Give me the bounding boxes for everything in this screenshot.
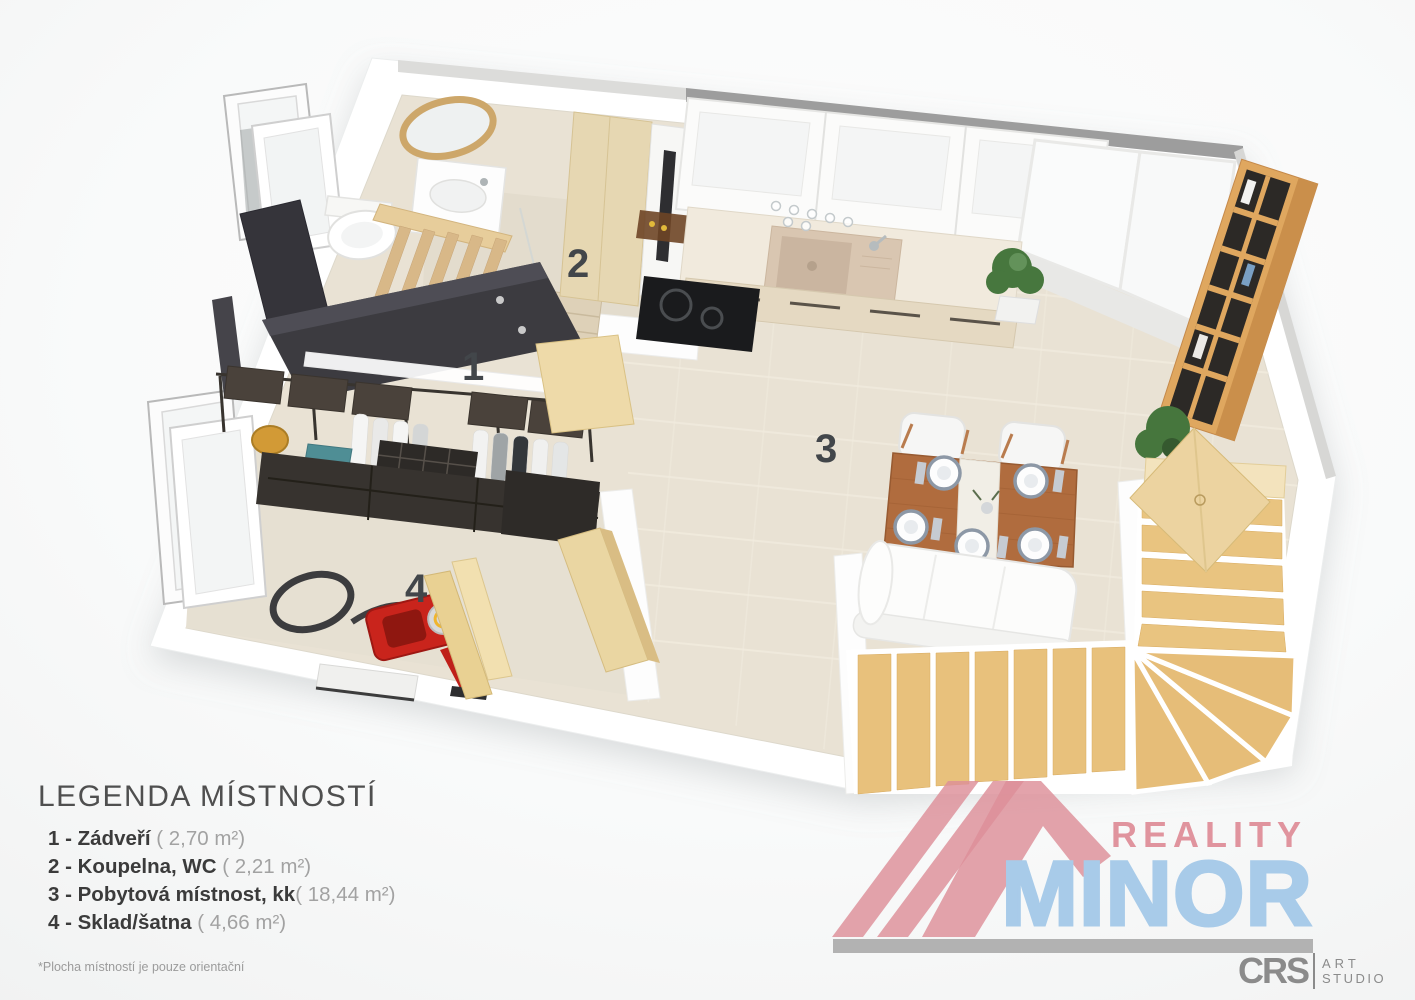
legend-item-2: 2 - Koupelna, WC ( 2,21 m²) xyxy=(48,853,395,881)
room-label-4: 4 xyxy=(405,567,428,611)
legend-item-2-area: ( 2,21 m²) xyxy=(217,855,312,878)
legend-title: LEGENDA MÍSTNOSTÍ xyxy=(38,780,395,814)
open-wood-door-hall xyxy=(536,335,634,433)
room-label-3: 3 xyxy=(815,427,837,471)
studio-credit-line2: STUDIO xyxy=(1322,971,1386,986)
studio-credit-logo: CRS xyxy=(1238,950,1308,992)
real-estate-floorplan-image: 1 2 3 4 LEGENDA MÍSTNOSTÍ 1 - Zádveří ( … xyxy=(0,0,1415,1000)
staircase-winder xyxy=(1132,650,1296,792)
legend: LEGENDA MÍSTNOSTÍ 1 - Zádveří ( 2,70 m²)… xyxy=(38,780,395,937)
studio-credit-text: ART STUDIO xyxy=(1322,956,1386,986)
brand-minor-wordmark: MINOR xyxy=(940,848,1313,940)
studio-credit: CRS ART STUDIO xyxy=(1238,950,1386,992)
legend-item-3: 3 - Pobytová místnost, kk( 18,44 m²) xyxy=(48,881,395,909)
footnote: *Plocha místností je pouze orientační xyxy=(38,960,244,974)
studio-credit-line1: ART xyxy=(1322,956,1386,971)
amber-stool xyxy=(252,426,288,454)
legend-item-1-area: ( 2,70 m²) xyxy=(151,827,246,850)
legend-item-4-name: 4 - Sklad/šatna xyxy=(48,911,192,934)
cooktop xyxy=(636,276,760,352)
room-label-2: 2 xyxy=(567,242,589,286)
legend-item-4-area: ( 4,66 m²) xyxy=(192,911,287,934)
window-mid-left xyxy=(148,390,266,608)
legend-items: 1 - Zádveří ( 2,70 m²) 2 - Koupelna, WC … xyxy=(38,825,395,937)
legend-item-4: 4 - Sklad/šatna ( 4,66 m²) xyxy=(48,909,395,937)
studio-credit-divider xyxy=(1313,953,1315,989)
legend-item-1: 1 - Zádveří ( 2,70 m²) xyxy=(48,825,395,853)
staircase-lower-run xyxy=(858,647,1125,794)
legend-item-3-name: 3 - Pobytová místnost, kk xyxy=(48,883,295,906)
legend-item-3-area: ( 18,44 m²) xyxy=(295,883,395,906)
legend-item-2-name: 2 - Koupelna, WC xyxy=(48,855,217,878)
room-label-1: 1 xyxy=(462,345,484,389)
legend-item-1-name: 1 - Zádveří xyxy=(48,827,151,850)
